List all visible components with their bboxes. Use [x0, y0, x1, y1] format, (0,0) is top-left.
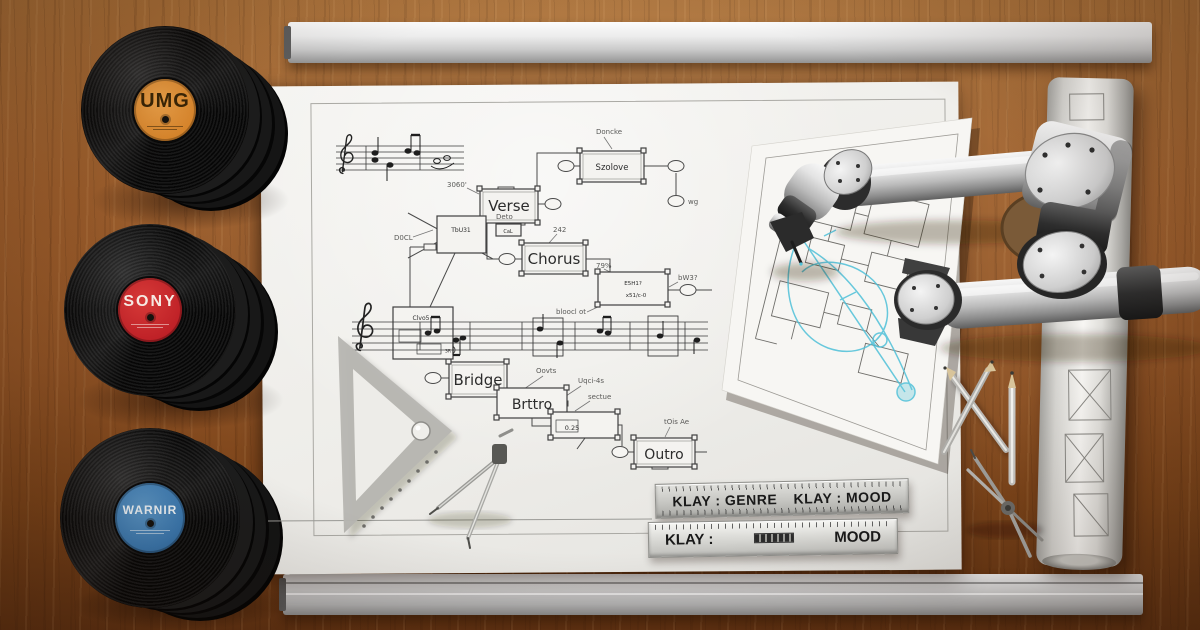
lower-arm-band — [1116, 265, 1164, 321]
robot-arm — [0, 0, 1200, 630]
scene-blueprint-desk: { "scene": { "description": "Robotic arm… — [0, 0, 1200, 630]
robot-wrist-lower — [894, 258, 962, 346]
pen-tip — [799, 262, 802, 265]
